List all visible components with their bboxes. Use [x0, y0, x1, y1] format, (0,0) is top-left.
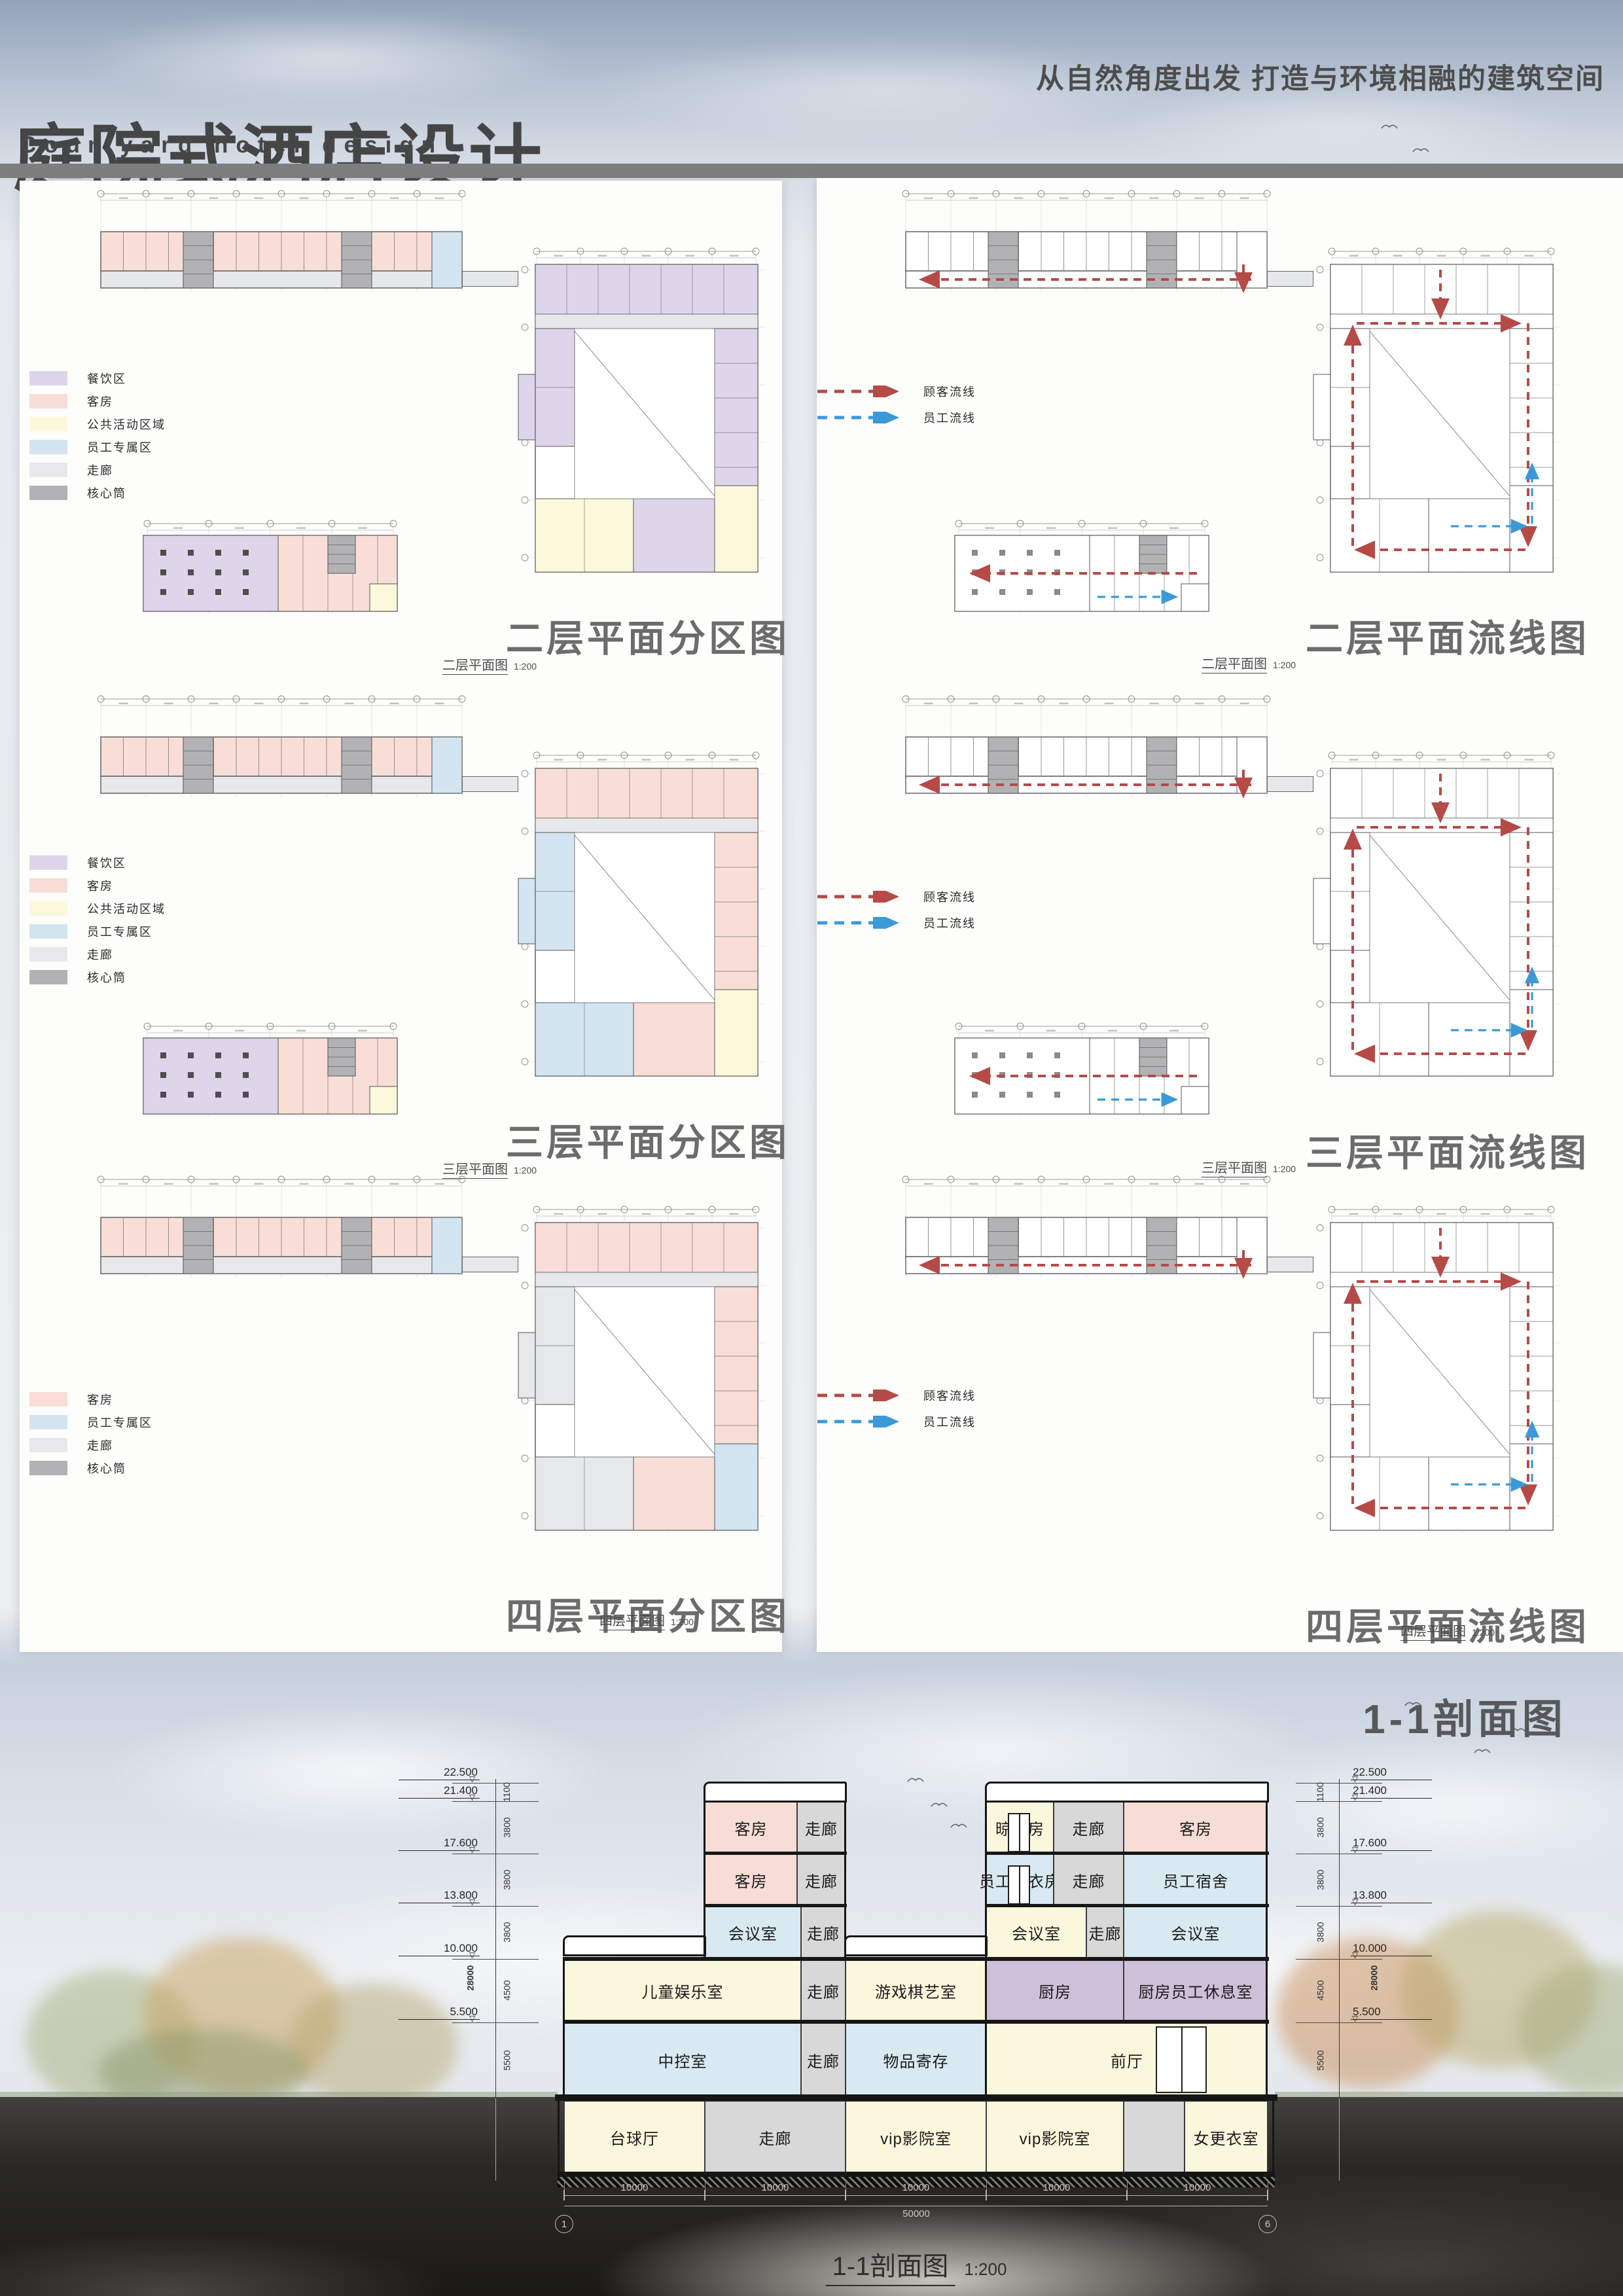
section-title: 1-1剖面图	[1363, 1686, 1567, 1745]
section-room-label: 游戏棋艺室	[875, 1979, 957, 2002]
section-room-f5-5: 客房	[1124, 1801, 1268, 1854]
section-wall	[1272, 2097, 1274, 2177]
flow-legend-item: 顾客流线	[815, 884, 976, 910]
section-room-label: 物品寄存	[883, 2049, 949, 2072]
section-floor-slab	[704, 1852, 847, 1855]
elevation-level-label: 13.800	[1351, 1889, 1432, 1903]
plan-2f-zoning-annex	[134, 516, 406, 620]
flow-legend-4f: 顾客流线员工流线	[815, 1382, 976, 1435]
section-room-label: 走廊	[1089, 1921, 1122, 1944]
legend-item: 走廊	[29, 1433, 152, 1456]
section-room-label: vip影院室	[1020, 2126, 1091, 2149]
bird-icon	[931, 1800, 948, 1812]
section-room-b1-1: 台球厅	[564, 2101, 705, 2174]
plan-connector-corridor	[1267, 776, 1313, 792]
flow-legend-item: 员工流线	[815, 404, 976, 431]
bird-icon	[950, 1821, 967, 1833]
legend-swatch	[29, 1438, 67, 1452]
section-door	[1008, 1813, 1030, 1852]
plan-4f-zoning-wing	[85, 1172, 478, 1283]
caption-4f-left: 四层平面图1:200	[599, 1610, 694, 1629]
elevation-level-marker: ▽	[1352, 1845, 1358, 1854]
bird-icon	[1381, 122, 1398, 134]
elevation-tick	[452, 1801, 539, 1802]
section-room-label: 前厅	[1111, 2049, 1143, 2072]
elevation-level-label: 22.500	[399, 1766, 480, 1780]
legend-swatch	[29, 901, 67, 916]
plan-2f-flow-courtyard	[1312, 243, 1571, 584]
bird-icon	[1404, 1699, 1421, 1711]
legend-swatch	[29, 486, 67, 500]
section-caption-text: 1-1剖面图	[826, 2252, 955, 2286]
tree	[288, 1983, 458, 2108]
elevation-segment-label: 5500	[502, 2050, 512, 2070]
legend-swatch	[29, 924, 67, 939]
tagline: 从自然角度出发 打造与环境相融的建筑空间	[1036, 56, 1605, 97]
legend-4f: 客房员工专属区走廊核心筒	[29, 1388, 152, 1479]
legend-label: 公共活动区域	[87, 900, 166, 917]
legend-item: 员工专属区	[29, 920, 166, 942]
elevation-line-below-ground	[1339, 2098, 1340, 2181]
section-room-label: 走廊	[1073, 1816, 1105, 1839]
legend-label: 客房	[87, 877, 113, 894]
flow-arrow-icon	[815, 891, 906, 903]
dimension-tick	[845, 2190, 846, 2200]
elevation-tick	[1296, 1801, 1382, 1802]
axis-bubble-start: 1	[555, 2215, 573, 2233]
section-roof-parapet	[844, 1935, 988, 1956]
plan-2f-flow-wing	[890, 186, 1283, 297]
plan-3f-flow-annex	[946, 1018, 1217, 1123]
elevation-tick	[452, 1783, 539, 1784]
elevation-segment-label: 3800	[502, 1817, 512, 1837]
plan-3f-zoning-annex	[134, 1018, 406, 1123]
elevation-level-marker: ▽	[469, 1845, 475, 1854]
section-room-label: 会议室	[1012, 1921, 1061, 1944]
dimension-span-label: 10000	[902, 2182, 930, 2193]
elevation-tick	[1296, 1959, 1382, 1960]
section-room-label: 走廊	[759, 2126, 792, 2149]
flow-legend-item: 顾客流线	[815, 1382, 976, 1408]
plan-connector-corridor	[462, 271, 518, 287]
section-room-f1-3: 物品寄存	[846, 2022, 986, 2097]
elevation-line	[495, 1779, 496, 2098]
section-wall	[563, 1957, 565, 2097]
legend-swatch	[29, 1415, 67, 1429]
bird-icon	[1474, 1746, 1491, 1758]
section-room-label: 中控室	[658, 2049, 707, 2072]
flow-arrow-icon	[815, 917, 906, 929]
dimension-tick	[986, 2190, 987, 2200]
plan-connector-corridor	[462, 776, 518, 792]
flow-arrow-icon	[815, 1390, 906, 1401]
elevation-level-marker: ▽	[469, 1774, 475, 1784]
legend-swatch	[29, 440, 67, 454]
legend-label: 走廊	[87, 1437, 113, 1454]
flow-arrow-icon	[815, 412, 906, 423]
title-3f-zoning: 三层平面分区图	[506, 1113, 790, 1166]
elevation-segment-label: 1100	[501, 1782, 512, 1802]
title-2f-zoning: 二层平面分区图	[506, 609, 790, 662]
plan-3f-flow-wing	[890, 691, 1283, 802]
dimension-tick	[1126, 2190, 1128, 2200]
plan-3f-zoning-courtyard	[517, 747, 776, 1088]
elevation-level-label: 22.500	[1351, 1766, 1432, 1780]
axis-bubble-end: 6	[1258, 2215, 1277, 2233]
elevation-level-label: 21.400	[399, 1784, 480, 1799]
section-room-label: 走廊	[807, 1979, 840, 2002]
legend-3f: 餐饮区客房公共活动区域员工专属区走廊核心筒	[29, 851, 166, 988]
flow-arrow-icon	[815, 1416, 906, 1427]
legend-swatch	[29, 463, 67, 477]
section-caption: 1-1剖面图1:200	[826, 2245, 1007, 2283]
plan-connector-corridor	[1267, 1257, 1313, 1272]
legend-swatch	[29, 1392, 67, 1407]
elevation-segment-label: 1100	[1315, 1782, 1325, 1802]
caption-scale: 1:200	[671, 1617, 694, 1627]
plan-2f-flow-annex	[946, 516, 1217, 620]
title-2f-flow: 二层平面流线图	[1306, 609, 1590, 662]
caption-scale: 1:200	[1273, 660, 1296, 670]
plan-connector-corridor	[1267, 271, 1313, 287]
flow-legend-label: 顾客流线	[923, 1387, 976, 1404]
caption-text: 四层平面图	[1400, 1624, 1466, 1641]
dimension-span-label: 10000	[621, 2182, 649, 2193]
elevation-tick	[1296, 1854, 1382, 1854]
section-room-label: 客房	[735, 1816, 768, 1839]
section-room-label: 厨房	[1039, 1979, 1071, 2002]
section-room-f1-4: 前厅	[986, 2022, 1268, 2097]
section-room-f4-1: 客房	[705, 1854, 797, 1906]
legend-label: 餐饮区	[87, 854, 126, 871]
bird-icon	[1509, 1725, 1526, 1737]
section-room-b1-3: vip影院室	[846, 2101, 986, 2174]
caption-text: 四层平面图	[599, 1614, 665, 1630]
dimension-tick	[1267, 2190, 1268, 2200]
elevation-level-marker: ▽	[1352, 1897, 1358, 1907]
section-room-label: 厨房员工休息室	[1139, 1979, 1253, 2002]
section-room-label: 走廊	[1073, 1869, 1105, 1892]
section-room-label: 客房	[735, 1869, 768, 1892]
flow-legend-label: 顾客流线	[923, 888, 976, 905]
section-floor-slab	[704, 1904, 847, 1907]
section-room-label: 走廊	[805, 1869, 838, 1892]
legend-swatch	[29, 947, 67, 961]
caption-text: 二层平面图	[442, 658, 508, 675]
legend-item: 走廊	[29, 458, 166, 481]
flow-arrow-icon	[815, 386, 906, 397]
legend-label: 公共活动区域	[87, 416, 166, 433]
legend-label: 员工专属区	[87, 1414, 152, 1431]
legend-label: 核心筒	[87, 1460, 126, 1477]
legend-swatch	[29, 970, 67, 984]
dimension-span-label: 10000	[762, 2182, 789, 2193]
flow-legend-3f: 顾客流线员工流线	[815, 884, 976, 936]
section-room-f1-2: 走廊	[801, 2022, 846, 2097]
bird-icon	[907, 1775, 924, 1787]
dimension-total-label: 50000	[902, 2208, 930, 2219]
section-floor-slab	[563, 1957, 1269, 1961]
dimension-tick	[704, 2190, 705, 2200]
elevation-level-label: 10.000	[399, 1942, 480, 1956]
section-wall	[844, 1801, 846, 1959]
section-room-f4-5: 员工宿舍	[1124, 1854, 1268, 1906]
legend-item: 客房	[29, 1388, 152, 1410]
legend-item: 客房	[29, 389, 166, 412]
plan-4f-flow-wing	[890, 1172, 1283, 1283]
cloud	[105, 1702, 615, 1839]
elevation-tick	[452, 2022, 539, 2023]
section-door	[1008, 1865, 1030, 1905]
section-room-f3-3: 会议室	[986, 1906, 1086, 1959]
elevation-level-label: 5.500	[1351, 2005, 1432, 2020]
elevation-level-marker: ▽	[469, 1950, 475, 1960]
elevation-level-label: 17.600	[399, 1837, 480, 1851]
section-room-label: 会议室	[728, 1921, 777, 1944]
elevation-level-label: 10.000	[1351, 1942, 1432, 1956]
elevation-total-label: 28000	[465, 1965, 475, 1991]
elevation-level-label: 21.400	[1351, 1784, 1432, 1799]
legend-item: 核心筒	[29, 1456, 152, 1479]
elevation-segment-label: 4500	[502, 1980, 512, 2000]
section-floor-slab	[555, 2094, 1277, 2101]
section-room-f2-2: 走廊	[801, 1959, 846, 2022]
elevation-level-marker: ▽	[1352, 2014, 1358, 2023]
flow-legend-label: 员工流线	[923, 1413, 976, 1430]
legend-swatch	[29, 1461, 67, 1475]
legend-label: 客房	[87, 393, 113, 410]
plan-4f-zoning-courtyard	[517, 1202, 776, 1542]
section-room-b1-6: 女更衣室	[1185, 2101, 1268, 2174]
elevation-tick	[1296, 1906, 1382, 1907]
flow-legend-item: 员工流线	[815, 910, 976, 936]
bird-icon	[1412, 145, 1429, 157]
section-room-label: vip影院室	[880, 2126, 952, 2149]
dimension-tick	[563, 2190, 565, 2200]
section-room-label: 客房	[1179, 1816, 1212, 1839]
elevation-total-label: 28000	[1368, 1965, 1379, 1991]
legend-label: 走廊	[87, 461, 113, 478]
caption-2f-right: 二层平面图1:200	[1202, 653, 1296, 672]
elevation-segment-label: 4500	[1315, 1980, 1326, 2000]
section-room-f3-2: 走廊	[801, 1906, 846, 1959]
legend-2f: 餐饮区客房公共活动区域员工专属区走廊核心筒	[29, 367, 166, 504]
legend-label: 核心筒	[87, 969, 126, 986]
flow-legend-item: 员工流线	[815, 1408, 976, 1435]
header-divider-bar	[0, 164, 1623, 178]
plan-3f-flow-courtyard	[1312, 747, 1571, 1088]
flow-legend-label: 员工流线	[923, 409, 976, 426]
section-room-f4-2: 走廊	[797, 1854, 846, 1906]
section-roof-parapet	[563, 1935, 706, 1956]
elevation-level-marker: ▽	[1352, 1950, 1358, 1960]
section-room-f4-4: 走廊	[1054, 1854, 1124, 1906]
elevation-level-label: 13.800	[399, 1889, 480, 1903]
elevation-tick	[452, 1906, 539, 1907]
plan-4f-flow-courtyard	[1312, 1202, 1571, 1542]
section-room-f5-4: 走廊	[1054, 1801, 1124, 1854]
section-room-label: 台球厅	[610, 2126, 659, 2149]
section-wall	[558, 2097, 560, 2177]
section-room-label: 走廊	[807, 2049, 840, 2072]
section-room-f5-2: 走廊	[797, 1801, 846, 1854]
caption-text: 二层平面图	[1202, 657, 1267, 673]
section-room-b1-5	[1124, 2101, 1185, 2174]
legend-swatch	[29, 371, 67, 386]
elevation-tick	[1296, 2022, 1382, 2023]
elevation-segment-label: 3800	[1315, 1817, 1326, 1837]
elevation-level-label: 5.500	[399, 2005, 480, 2020]
legend-label: 客房	[87, 1391, 113, 1408]
elevation-level-label: 17.600	[1351, 1837, 1432, 1851]
section-room-f2-1: 儿童娱乐室	[564, 1959, 801, 2022]
legend-label: 餐饮区	[87, 370, 126, 387]
plan-3f-zoning-wing	[85, 691, 478, 802]
caption-scale: 1:200	[514, 661, 537, 672]
legend-swatch	[29, 394, 67, 408]
elevation-tick	[452, 1959, 539, 1960]
section-room-label: 儿童娱乐室	[642, 1979, 724, 2002]
elevation-line-below-ground	[495, 2098, 496, 2181]
dimension-span-label: 10000	[1184, 2182, 1211, 2193]
legend-item: 餐饮区	[29, 367, 166, 389]
elevation-segment-label: 3800	[1315, 1922, 1326, 1942]
section-wall	[704, 1801, 705, 1959]
elevation-tick	[1296, 1783, 1382, 1784]
elevation-segment-label: 3800	[1315, 1869, 1326, 1890]
elevation-level-marker: ▽	[469, 1897, 475, 1907]
section-room-f2-5: 厨房员工休息室	[1124, 1959, 1268, 2022]
caption-scale: 1:200	[514, 1165, 537, 1175]
dimension-line	[564, 2195, 1268, 2196]
section-room-f3-5: 会议室	[1124, 1906, 1268, 1959]
elevation-level-marker: ▽	[1352, 1774, 1358, 1784]
section-room-b1-2: 走廊	[705, 2101, 846, 2174]
elevation-level-marker: ▽	[1352, 1793, 1358, 1802]
section-room-label: 女更衣室	[1194, 2126, 1259, 2149]
section-room-b1-4: vip影院室	[986, 2101, 1124, 2174]
section-room-label: 会议室	[1171, 1921, 1221, 1944]
legend-swatch	[29, 878, 67, 893]
dimension-span-label: 10000	[1043, 2182, 1071, 2193]
section-wall	[1266, 1801, 1268, 2097]
elevation-level-marker: ▽	[469, 2014, 475, 2023]
dimension-line-total	[564, 2206, 1268, 2206]
elevation-segment-label: 3800	[502, 1869, 512, 1890]
flow-legend-2f: 顾客流线员工流线	[815, 378, 976, 431]
flow-legend-label: 员工流线	[923, 914, 976, 931]
legend-swatch	[29, 417, 67, 431]
legend-label: 核心筒	[87, 484, 126, 501]
legend-swatch	[29, 855, 67, 870]
elevation-tick	[452, 1854, 539, 1854]
poster-page: 庭院式酒店设计 Courtyard hotel design 从自然角度出发 打…	[0, 0, 1623, 2296]
legend-item: 走廊	[29, 942, 166, 965]
section-room-f3-4: 走廊	[1086, 1906, 1124, 1959]
section-room-label: 走廊	[807, 1921, 840, 1944]
legend-item: 公共活动区域	[29, 897, 166, 920]
section-roof-parapet	[704, 1782, 847, 1803]
title-3f-flow: 三层平面流线图	[1306, 1123, 1590, 1177]
caption-2f-left: 二层平面图1:200	[442, 655, 537, 673]
legend-item: 核心筒	[29, 481, 166, 504]
elevation-segment-label: 3800	[502, 1922, 512, 1942]
elevation-segment-label: 5500	[1315, 2050, 1326, 2070]
section-floor-slab	[563, 2020, 1269, 2024]
legend-item: 员工专属区	[29, 435, 166, 458]
legend-label: 走廊	[87, 946, 113, 963]
legend-item: 公共活动区域	[29, 412, 166, 435]
plan-2f-zoning-wing	[85, 186, 478, 297]
section-caption-scale: 1:200	[964, 2259, 1007, 2279]
section-room-f3-1: 会议室	[705, 1906, 801, 1959]
section-room-label: 走廊	[805, 1816, 838, 1839]
section-room-label: 员工宿舍	[1163, 1869, 1228, 1892]
caption-scale: 1:200	[1472, 1627, 1495, 1638]
plan-connector-corridor	[462, 1257, 518, 1272]
cloud	[79, 9, 576, 107]
page-subtitle: Courtyard hotel design	[20, 132, 443, 158]
caption-4f-right: 四层平面图1:200	[1400, 1621, 1495, 1640]
legend-label: 员工专属区	[87, 923, 152, 940]
section-room-f2-4: 厨房	[986, 1959, 1124, 2022]
legend-item: 客房	[29, 874, 166, 897]
section-room-f5-1: 客房	[705, 1801, 797, 1854]
legend-item: 员工专属区	[29, 1410, 152, 1433]
legend-item: 餐饮区	[29, 851, 166, 874]
elevation-level-marker: ▽	[469, 1793, 475, 1802]
section-room-f2-3: 游戏棋艺室	[846, 1959, 986, 2022]
legend-label: 员工专属区	[87, 439, 152, 456]
legend-item: 核心筒	[29, 965, 166, 988]
flow-legend-item: 顾客流线	[815, 378, 976, 404]
plan-2f-zoning-courtyard	[517, 243, 776, 584]
section-entrance-door	[1156, 2026, 1207, 2093]
section-floor-slab	[558, 2172, 1275, 2177]
section-wall	[985, 1801, 987, 2097]
elevation-line	[1339, 1779, 1340, 2098]
section-room-f1-1: 中控室	[564, 2022, 801, 2097]
section-roof-parapet	[985, 1782, 1269, 1803]
flow-legend-label: 顾客流线	[923, 383, 976, 400]
